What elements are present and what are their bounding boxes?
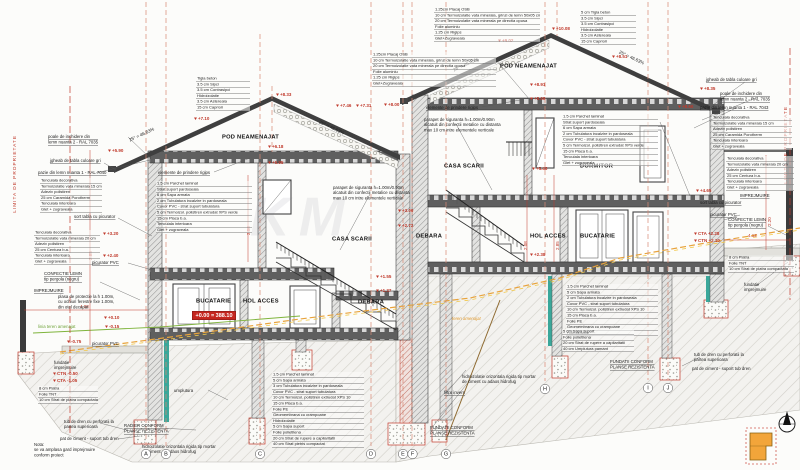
note-plasa: plasa de protectie la h 1.00m,cu ochiuri… <box>58 294 114 310</box>
note-filtru-invers: filtru invers <box>444 390 465 396</box>
layers-wall-brick-right: Tencuiala decorativaTermoizolatie vata m… <box>712 115 792 150</box>
axis-bubble-d: D <box>366 449 376 459</box>
elevation-marker: -0.75 <box>67 339 81 344</box>
text-line: PLANSE REZISTENTA <box>430 431 475 437</box>
note-imprejmuire: IMPREJMUIRE <box>740 193 770 199</box>
room-debara-right: DEBARA <box>416 233 442 239</box>
layers-roof-left: Tigla beton3.5 cm Sipci3.5 cm Contrasipc… <box>196 76 250 111</box>
dim-height: 2.20 <box>767 217 772 226</box>
text-line: 40 cm Strat pietris compactat <box>272 442 364 448</box>
property-limit-left: LIMITA DE PROPRIETATE <box>12 135 18 213</box>
layers-pavement-right: 8 cm PiatraFolie TNT10 cm Strat de piatr… <box>728 255 794 272</box>
elevation-marker: +5.90 <box>108 148 123 153</box>
text-line: PLANSE REZISTENTA <box>610 365 655 371</box>
text-line: de ciment cu adaos hidrofug <box>142 449 216 454</box>
elevation-marker: +7.46 <box>336 103 351 108</box>
room-bucatarie-right: BUCATARIE <box>580 233 615 239</box>
note-picurator: picurator PVC <box>92 260 119 266</box>
elevation-marker: +1.55 <box>376 274 391 279</box>
elevation-marker: +10.08 <box>552 26 570 31</box>
elevation-marker: +6.18 <box>268 144 283 149</box>
dim-height: 2.85 <box>555 241 560 250</box>
elevation-marker: +4.65 <box>696 188 711 193</box>
axis-bubble-b: B <box>161 449 171 459</box>
room-pod-right: POD NEAMENAJAT <box>500 63 557 69</box>
text-line: de ciment cu adaos hidrofug <box>462 379 536 384</box>
elevation-marker: +5.48 <box>532 166 547 171</box>
axis-bubble-c: C <box>255 449 265 459</box>
layers-ground-slab: 1.5 cm Parchet laminat5 cm Sapa armata3 … <box>272 372 364 447</box>
text-line: imprejmuire <box>744 287 766 292</box>
text-line: Glet + zugraveala <box>726 185 794 191</box>
note-rigips: elemente de prindere rigips <box>426 105 478 111</box>
label-overlay: KM LIMITA DE PROPRIETATE LIMITA DE PROPR… <box>0 0 800 470</box>
note-sort-tabla: sort tabla cu picurator <box>700 200 741 206</box>
text-line: PLANSE REZISTENTA <box>124 429 169 435</box>
elevation-marker: +1.37 <box>376 288 391 293</box>
text-line: 15 cm Capriori <box>196 105 250 111</box>
room-hol-left: HOL ACCES <box>243 298 279 304</box>
elevation-marker: CTN +2.10 <box>694 238 720 243</box>
room-casa-scarii-left: CASA SCARII <box>332 236 372 242</box>
note-pat-ciment: pat de ciment - suport tub dren <box>692 366 751 371</box>
note-umplutura: umplutura <box>174 388 193 393</box>
text-line: din otel decapat <box>58 304 114 309</box>
elevation-marker: +8.35 <box>700 86 715 91</box>
text-line: Glet + zugraveala <box>156 227 252 233</box>
text-line: imprejmuire <box>54 365 76 370</box>
layers-attic-ceiling-right: 1.25cm Placaj OSB10 cm Termoizolatie vat… <box>434 7 540 42</box>
elevation-marker: CTA +2.28 <box>694 231 719 236</box>
note-imprejmuire: IMPREJMUIRE <box>34 288 64 294</box>
text-line: tip pergola (negru) <box>44 277 82 283</box>
text-line: 40 cm Umplutura pamant <box>562 346 634 352</box>
elevation-marker: +3.20 <box>103 231 118 236</box>
note-tub-dren: tub de dren cu perforatii lapartea super… <box>64 419 114 429</box>
note-jgheab: jgheab de tabla culoare gri <box>706 77 757 83</box>
room-casa-scarii-right: CASA SCARII <box>444 163 484 169</box>
note-poale: poale de inchidere dinlemn nuanta 2 - RA… <box>720 91 770 102</box>
note-picurator: picurator PVC <box>92 341 119 347</box>
axis-bubble-f: F <box>408 449 418 459</box>
elevation-marker: +8.68 <box>530 96 545 101</box>
slope-label: 25° = 46.63% <box>128 126 155 142</box>
layers-pavement-left: 8 cm PiatraFolie TNT10 cm Strat de piatr… <box>38 386 98 403</box>
axis-bubble-i: I <box>643 383 653 393</box>
layers-attic-ceiling-left: 1.25cm Placaj OSB10 cm Termoizolatie vat… <box>372 52 496 87</box>
text-line: partea superioara <box>64 424 114 429</box>
text-line: Glet + zugraveala <box>712 144 792 150</box>
text-line: partea superioara <box>694 357 744 362</box>
section-drawing: KM LIMITA DE PROPRIETATE LIMITA DE PROPR… <box>0 0 800 470</box>
slope-label: 25° = 46.63% <box>318 119 345 135</box>
elevation-marker: CTN -0.50 <box>53 371 78 376</box>
axis-bubble-a: A <box>141 449 151 459</box>
text-line: lemn nuanta 2 - RAL 7035 <box>48 140 98 146</box>
layers-ground-slab-right-lower: 5 cm Sapa suportFolie polietilena20 cm S… <box>562 329 634 352</box>
elevation-marker: +0.10 <box>104 315 119 320</box>
note-fundatii: FUNDATII CONFORMPLANSE REZISTENTA <box>430 425 475 436</box>
layers-wall-centura-right: Tencuiala decorativaTermoizolatie vata m… <box>726 156 794 191</box>
elevation-marker: +8.60 <box>678 104 693 109</box>
axis-bubble-h: H <box>540 384 550 394</box>
elevation-marker: +8.91 <box>530 82 545 87</box>
elevation-marker: CTA -1.05 <box>53 378 77 383</box>
note-fundatie-imprejmuire: fundatieimprejmuire <box>744 282 766 292</box>
dim-height: 2.08 <box>523 241 528 250</box>
note-pergola: CONFECTIE LEMNtip pergola (negru) <box>44 271 82 282</box>
elevation-marker: +7.31 <box>356 103 371 108</box>
note-pazie: pazie din lemn nuanta 1 - RAL 7043 <box>700 105 768 111</box>
note-fundatie-imprejmuire: fundatieimprejmuire <box>54 360 76 370</box>
note-pergola: CONFECTIE LEMNtip pergola (negru) <box>728 217 766 228</box>
note-parapet: parapet de siguranta h=1.00m/0.90malcatu… <box>424 117 501 133</box>
note-poale: poale de inchidere dinlemn nuanta 2 - RA… <box>48 134 98 145</box>
note-sort-tabla: sort tabla cu picurator <box>74 214 115 220</box>
elevation-marker: -0.15 <box>105 324 119 329</box>
layers-floor-upper-right: 1.5 cm Parchet laminatStrat suport pardo… <box>562 114 658 166</box>
axis-bubble-e: E <box>398 449 408 459</box>
text-line: Glet + zugraveala <box>40 207 102 213</box>
text-line: Glet + zugraveala <box>34 259 100 265</box>
note-linia-teren: linia teren amenajat <box>38 324 76 329</box>
elevation-marker: +2.40 <box>103 253 118 258</box>
elevation-marker: +7.10 <box>194 116 209 121</box>
elevation-marker: +2.38 <box>530 252 545 257</box>
text-line: conform proiect <box>34 452 95 457</box>
level-zero-box: +0.00 = 388.10 <box>192 311 236 320</box>
elevation-marker: +2.72 <box>398 223 413 228</box>
elevation-marker: +8.00 <box>384 102 399 107</box>
note-teren-amenajat: teren amenajat <box>452 316 481 321</box>
text-line: 10 cm Strat de piatra compactata <box>38 398 98 404</box>
note-tub-dren: tub de dren cu perforatii lapartea super… <box>694 352 744 362</box>
room-hol-right: HOL ACCES <box>530 233 566 239</box>
dim-width: 4.12 <box>748 233 757 238</box>
layers-roof-right: 5 cm Tigla beton3.5 cm Sipci3.5 cm Contr… <box>580 10 636 45</box>
note-jgheab: jgheab de tabla culoare gri <box>50 158 101 164</box>
layers-wall-brick-left: Tencuiala decorativaTermoizolatie vata m… <box>40 178 102 213</box>
text-line: 15 cm Capriori <box>580 39 636 45</box>
text-line: Glet+Zugraveala <box>372 81 496 87</box>
elevation-marker: +3.00 <box>398 208 413 213</box>
note-pazie: pazie din lemn nuanta 1 - RAL 7040 <box>38 170 106 176</box>
text-line: Glet+Zugraveala <box>434 36 540 42</box>
text-line: max 10 cm intre elementele verticale <box>424 127 501 132</box>
elevation-marker: +5.95 <box>268 160 283 165</box>
elevation-marker: +8.33 <box>276 92 291 97</box>
text-line: 10 cm Strat de piatra compactata <box>728 267 794 273</box>
room-pod-left: POD NEAMENAJAT <box>222 134 279 140</box>
note-radier: RADIER CONFORMPLANSE REZISTENTA <box>124 423 169 434</box>
note-rigips: elemente de prindere rigips <box>158 170 210 176</box>
note-nota: Nota:se va amplasa gard imprejmuireconfo… <box>34 442 95 458</box>
note-fundatii: FUNDATII CONFORMPLANSE REZISTENTA <box>610 359 655 370</box>
note-hidroizolatie: hidroizolatie orizontala rigida tip mort… <box>462 374 536 384</box>
room-debara-left: DEBARA <box>358 299 384 305</box>
axis-bubble-j: J <box>663 383 673 393</box>
text-line: Glet + zugraveala <box>562 160 658 166</box>
text-line: tip pergola (negru) <box>728 223 766 229</box>
layers-floor-upper-left: 1.5 cm Parchet laminatStrat suport pardo… <box>156 181 252 233</box>
note-pat-ciment: pat de ciment - suport tub dren <box>60 436 119 441</box>
note-hidroizolatie: hidroizolatie orizontala rigida tip mort… <box>142 444 216 454</box>
text-line: lemn nuanta 2 - RAL 7035 <box>720 97 770 103</box>
room-bucatarie-left: BUCATARIE <box>196 298 231 304</box>
note-parapet: parapet de siguranta h=1.00m/0.90malcatu… <box>333 185 410 201</box>
axis-bubble-g: G <box>441 449 451 459</box>
layers-wall-centura-left: Tencuiala decorativaTermoizolatie vata m… <box>34 230 100 265</box>
text-line: max 10 cm intre elementele verticale <box>333 195 410 200</box>
